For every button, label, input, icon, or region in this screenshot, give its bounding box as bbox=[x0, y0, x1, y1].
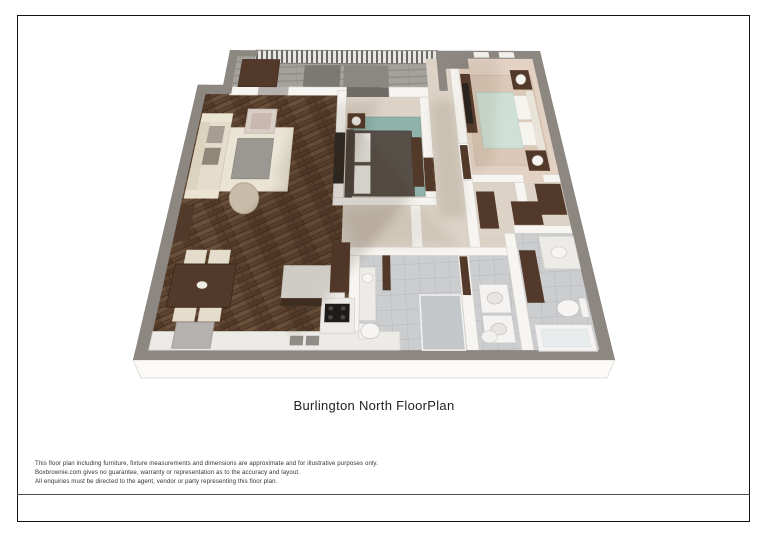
floorplan-title: Burlington North FloorPlan bbox=[17, 398, 731, 413]
page-border bbox=[17, 15, 750, 522]
page-sheet: Burlington North FloorPlan This floor pl… bbox=[0, 0, 768, 543]
disclaimer-text: This floor plan including furniture, fix… bbox=[35, 459, 378, 487]
disclaimer-line-2: Boxbrownie.com gives no guarantee, warra… bbox=[35, 468, 378, 477]
disclaimer-line-3: All enquiries must be directed to the ag… bbox=[35, 477, 378, 486]
footer-divider bbox=[17, 494, 750, 495]
disclaimer-line-1: This floor plan including furniture, fix… bbox=[35, 459, 378, 468]
